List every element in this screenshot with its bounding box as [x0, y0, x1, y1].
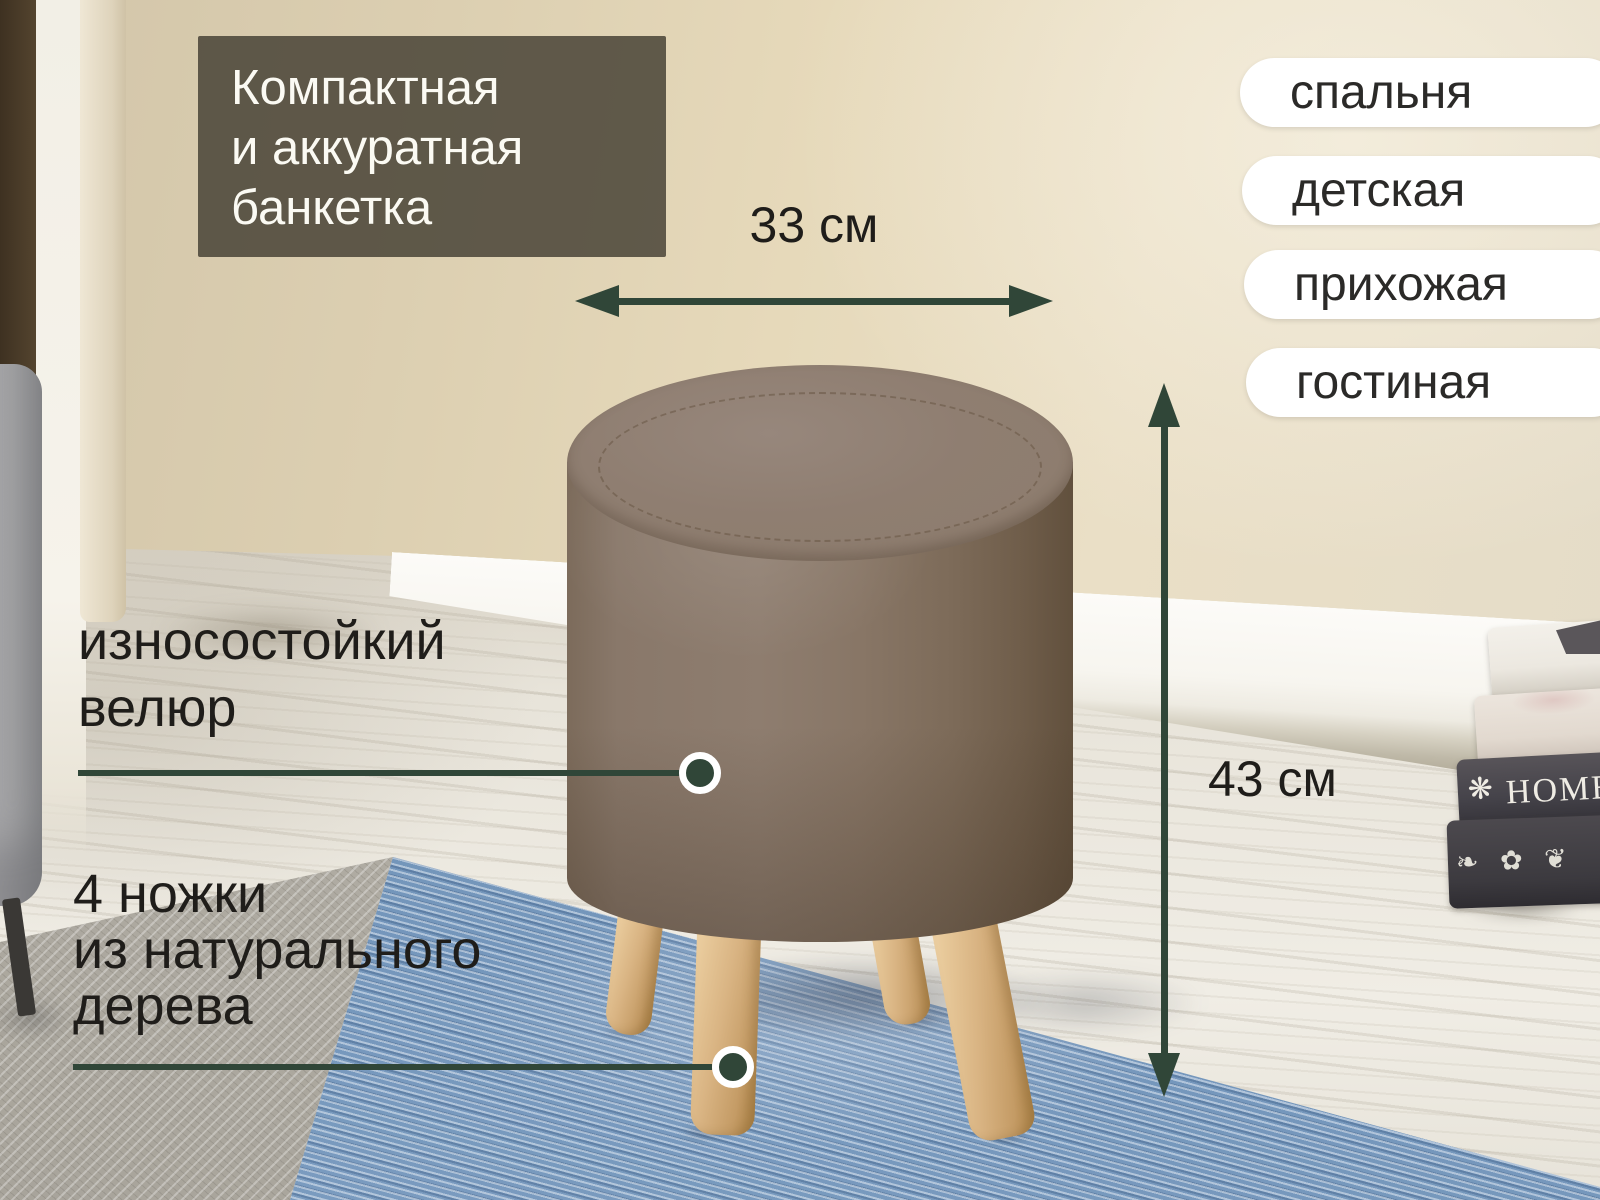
pouf-stitch-seam: [598, 392, 1042, 542]
room-tag-kids: детская: [1242, 156, 1600, 225]
legs-label-line: из натурального: [73, 922, 481, 978]
room-tag-label: прихожая: [1244, 250, 1600, 319]
arrow-right-icon: [1009, 285, 1053, 317]
book-scroll-icon: ❧ ✿ ❦: [1455, 816, 1576, 904]
legs-label-line: дерева: [73, 978, 481, 1034]
legs-callout-label: 4 ножки из натурального дерева: [73, 866, 481, 1034]
fabric-callout-line: [78, 770, 679, 776]
width-dimension-arrow: [575, 285, 1053, 317]
fabric-label-line: износостойкий: [78, 608, 446, 675]
title-line: Компактная: [231, 58, 666, 118]
fabric-label-line: велюр: [78, 675, 446, 742]
arrow-shaft: [1161, 415, 1168, 1065]
product-infographic: ❋ HOME ❧ ✿ ❦ Компактная и аккуратная бан…: [0, 0, 1600, 1200]
height-dimension-label: 43 см: [1208, 750, 1337, 808]
width-dimension-label: 33 см: [575, 196, 1053, 254]
floral-book: ❧ ✿ ❦: [1447, 815, 1600, 908]
room-tag-bedroom: спальня: [1240, 58, 1600, 127]
room-tag-livingroom: гостиная: [1246, 348, 1600, 417]
room-tag-hallway: прихожая: [1244, 250, 1600, 319]
fabric-callout-dot: [679, 752, 721, 794]
height-dimension-arrow: [1148, 383, 1180, 1097]
room-tag-label: детская: [1242, 156, 1600, 225]
dark-curtain-fold: [0, 0, 40, 422]
arrow-down-icon: [1148, 1053, 1180, 1097]
room-tag-label: гостиная: [1246, 348, 1600, 417]
room-tag-label: спальня: [1240, 58, 1600, 127]
legs-label-line: 4 ножки: [73, 866, 481, 922]
cream-curtain-fold: [80, 0, 126, 622]
fabric-callout-label: износостойкий велюр: [78, 608, 446, 742]
legs-callout-dot: [712, 1046, 754, 1088]
legs-callout-line: [73, 1064, 712, 1070]
book-floral-icon: ❋: [1467, 774, 1494, 805]
arrow-shaft: [607, 298, 1021, 305]
title-line: и аккуратная: [231, 118, 666, 178]
gray-armchair: [0, 364, 42, 906]
